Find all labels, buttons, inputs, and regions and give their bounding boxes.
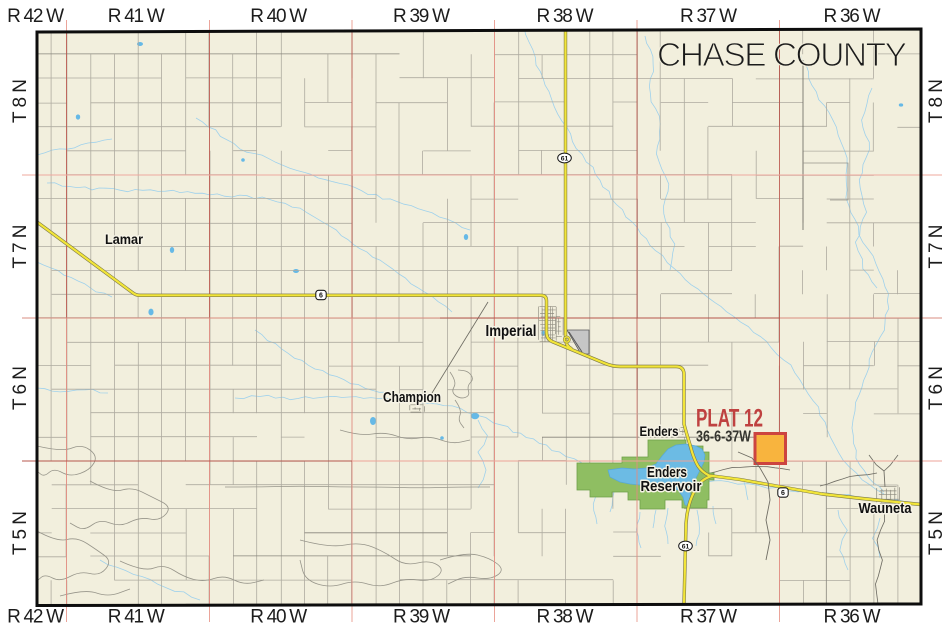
svg-text:T 5 N: T 5 N <box>926 511 947 555</box>
svg-text:T 7 N: T 7 N <box>926 225 947 269</box>
svg-text:Enders: Enders <box>640 423 679 439</box>
svg-text:T 7 N: T 7 N <box>10 225 31 269</box>
svg-text:R 38 W: R 38 W <box>537 607 594 628</box>
svg-text:R 41 W: R 41 W <box>108 607 165 628</box>
svg-text:6: 6 <box>781 490 785 497</box>
svg-text:T 5 N: T 5 N <box>10 511 31 555</box>
svg-text:R 38 W: R 38 W <box>537 6 594 27</box>
svg-text:CHASE COUNTY: CHASE COUNTY <box>657 37 907 74</box>
svg-text:Lamar: Lamar <box>105 231 143 247</box>
svg-text:R 42 W: R 42 W <box>7 6 64 27</box>
svg-text:Imperial: Imperial <box>486 323 537 340</box>
svg-text:36-6-37W: 36-6-37W <box>696 429 752 446</box>
svg-text:Wauneta: Wauneta <box>859 500 913 517</box>
svg-text:R 36 W: R 36 W <box>824 607 881 628</box>
svg-text:T 8 N: T 8 N <box>926 79 947 123</box>
svg-text:R 40 W: R 40 W <box>250 607 307 628</box>
svg-text:R 37 W: R 37 W <box>680 607 737 628</box>
svg-text:R 41 W: R 41 W <box>108 6 165 27</box>
svg-text:6: 6 <box>319 293 323 300</box>
svg-text:R 39 W: R 39 W <box>393 607 450 628</box>
svg-text:R 37 W: R 37 W <box>680 6 737 27</box>
svg-text:Champion: Champion <box>383 390 441 406</box>
svg-text:Reservoir: Reservoir <box>641 478 702 495</box>
svg-text:R 42 W: R 42 W <box>7 607 64 628</box>
svg-text:61: 61 <box>682 544 690 551</box>
svg-text:61: 61 <box>561 156 569 163</box>
svg-text:T 8 N: T 8 N <box>10 79 31 123</box>
svg-text:T 6 N: T 6 N <box>926 366 947 410</box>
svg-text:R 39 W: R 39 W <box>393 6 450 27</box>
svg-text:T 6 N: T 6 N <box>10 366 31 410</box>
svg-text:R 40 W: R 40 W <box>250 6 307 27</box>
svg-text:R 36 W: R 36 W <box>824 6 881 27</box>
